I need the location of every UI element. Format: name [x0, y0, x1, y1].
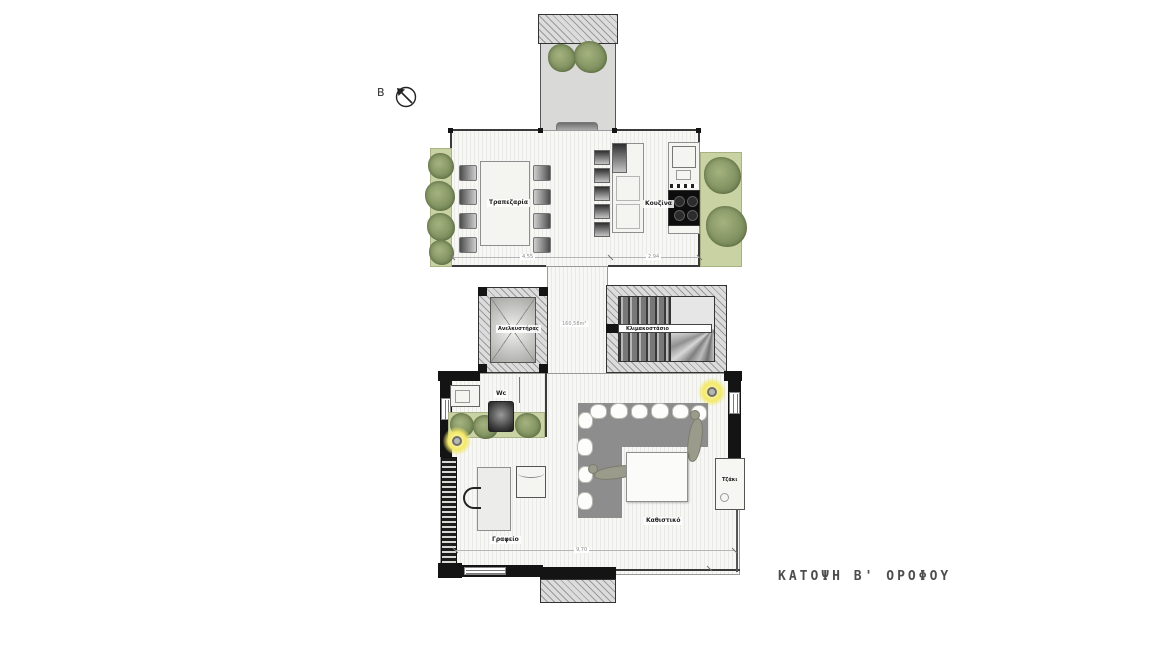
room-label-staircase: Κλιμακοστάσιο: [624, 325, 671, 333]
wall: [608, 265, 700, 267]
office-desk: [477, 467, 511, 531]
window-pane-line: [737, 394, 738, 414]
wall-column: [612, 128, 617, 133]
office-cabinet: [516, 466, 546, 498]
tree: [428, 153, 454, 179]
terrace-parapet-wall: [538, 14, 618, 44]
wall-column: [539, 364, 548, 373]
sofa-cushion: [578, 412, 593, 429]
chair: [533, 165, 551, 181]
room-label-fireplace: Τζάκι: [720, 476, 739, 484]
coffee-table: [626, 452, 688, 502]
tree: [548, 44, 576, 72]
kitchen-cabinet-door: [616, 204, 640, 229]
chair: [459, 237, 477, 253]
sofa-cushion: [631, 404, 648, 419]
kitchen-sink-basin: [676, 170, 691, 180]
chair: [459, 189, 477, 205]
kitchen-appliance: [594, 222, 610, 237]
room-label-office: Γραφείο: [490, 536, 521, 544]
plan-title: ΚΑΤΟΨΗ Β' ΟΡΟΦΟΥ: [778, 569, 951, 584]
window: [464, 567, 506, 575]
chair: [533, 213, 551, 229]
room-label-living: Καθιστικό: [644, 517, 682, 525]
section-marker-label: B: [377, 86, 385, 99]
window-pane-line: [466, 573, 506, 574]
window: [729, 392, 740, 414]
bush: [515, 413, 541, 438]
tree: [427, 213, 455, 241]
kitchen-cabinet-door: [616, 176, 640, 201]
fireplace-flue-circle: [720, 493, 729, 502]
kitchen-sink: [672, 146, 696, 168]
kitchen-appliance: [594, 204, 610, 219]
window-pane-line: [733, 394, 734, 414]
dimension-line: [452, 257, 700, 258]
area-label: 160,58m²: [560, 321, 588, 327]
tree: [425, 181, 455, 211]
room-label-dining: Τραπεζαρία: [487, 199, 530, 207]
sofa-cushion: [577, 492, 593, 510]
wall-column: [538, 128, 543, 133]
toilet: [450, 385, 480, 407]
cooktop-knobs: [670, 184, 698, 188]
cabinet-arc: [518, 469, 544, 478]
sofa-cushion: [610, 403, 628, 419]
dimension-label-upper-left: 4,55: [520, 254, 535, 260]
wall: [614, 129, 700, 131]
wall-column: [539, 287, 548, 296]
wall: [540, 567, 616, 579]
tree: [574, 41, 607, 73]
wall: [616, 569, 740, 571]
wall: [450, 265, 546, 267]
wall: [728, 373, 741, 463]
sofa-cushion: [651, 403, 669, 419]
tree: [704, 157, 741, 194]
chair: [533, 189, 551, 205]
toilet-tank: [455, 390, 470, 403]
room-label-kitchen: Κουζίνα: [643, 200, 674, 208]
person-figure-head: [588, 464, 598, 474]
burner: [687, 210, 698, 221]
north-arrow-icon: [393, 84, 419, 110]
wall-column: [478, 287, 487, 296]
wall-column: [696, 128, 701, 133]
stair-entry-marker: [606, 324, 618, 333]
dimension-line: [455, 550, 735, 551]
room-label-wc: Wc: [494, 390, 508, 398]
interior-wall: [545, 373, 547, 437]
cooktop: [668, 190, 700, 226]
kitchen-appliance: [594, 150, 610, 165]
chair: [459, 213, 477, 229]
tree: [429, 240, 454, 265]
burner: [674, 196, 685, 207]
burner: [687, 196, 698, 207]
wall: [450, 129, 542, 131]
chair: [533, 237, 551, 253]
office-chair: [463, 487, 481, 509]
sofa-cushion: [577, 438, 593, 456]
floor-plan-canvas: B Τραπεζαρία: [0, 0, 1150, 646]
kitchen-appliance: [594, 186, 610, 201]
sofa-cushion: [672, 404, 689, 419]
kitchen-appliance: [612, 143, 627, 173]
balcony-below: [540, 579, 616, 603]
tree: [706, 206, 747, 247]
flue-line: [519, 377, 520, 403]
wall-column: [448, 128, 453, 133]
room-label-elevator: Ανελκυστήρας: [496, 325, 541, 333]
window-pane-line: [445, 400, 446, 420]
kitchen-appliance: [594, 168, 610, 183]
ceiling-light-core: [707, 387, 717, 397]
fireplace-box: [715, 458, 745, 510]
burner: [674, 210, 685, 221]
stove-unit: [488, 401, 514, 432]
dimension-label-upper-right: 2,94: [646, 254, 661, 260]
dimension-label-lower: 9,70: [574, 547, 589, 553]
window-pane-line: [466, 570, 506, 571]
chair: [459, 165, 477, 181]
person-figure-head: [690, 410, 700, 420]
ceiling-light-core: [452, 436, 462, 446]
